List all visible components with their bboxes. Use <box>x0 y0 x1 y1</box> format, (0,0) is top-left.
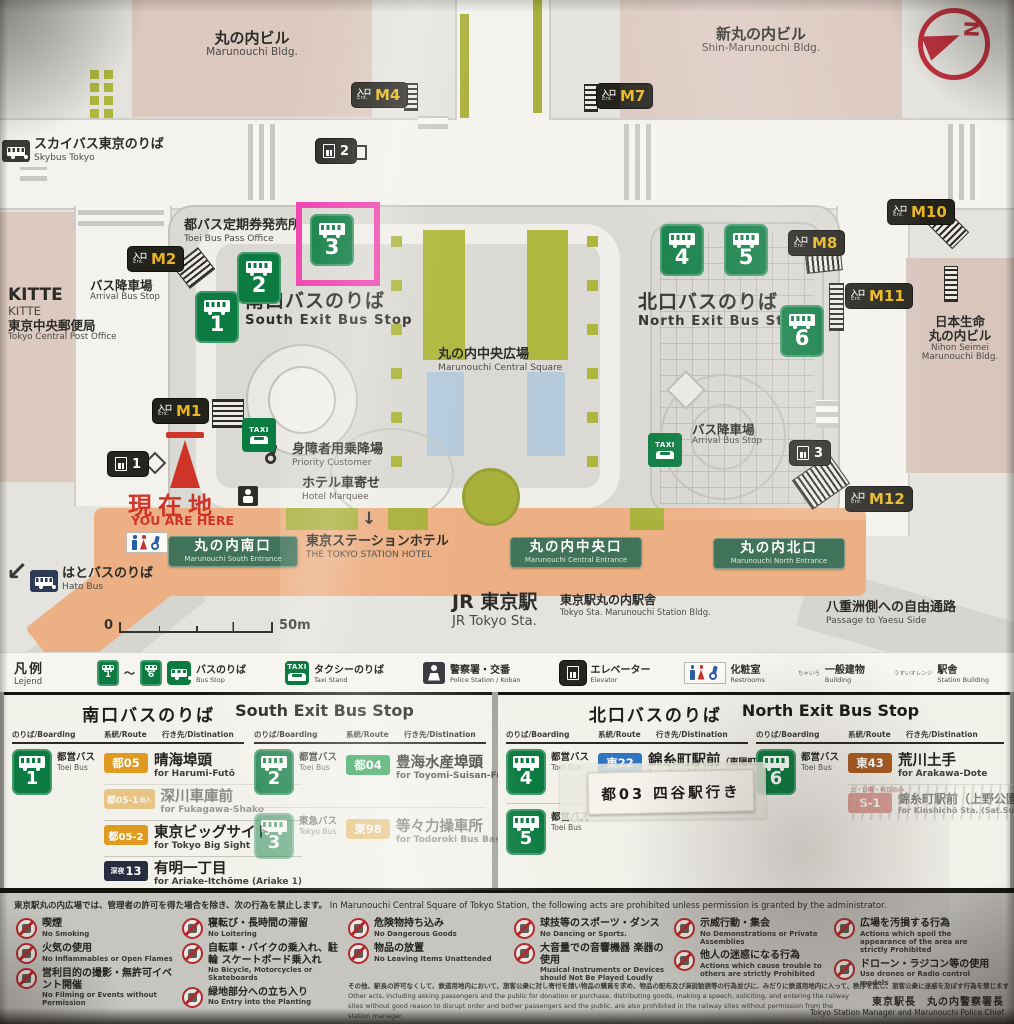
rule-no-dangerous-goods: 危険物持ち込みNo Dangerous Goods <box>348 918 506 939</box>
elevator-glyph <box>797 446 809 460</box>
nihon-seimei-building <box>906 258 1014 473</box>
south-table-title: 南口バスのりばSouth Exit Bus Stop <box>4 701 492 726</box>
bus-stop-1-mini-icon: 1 <box>97 660 119 686</box>
rule-no-defacing: 広場を汚損する行為Actions which spoil the appeara… <box>834 918 992 955</box>
no-sports-dance-icon <box>514 918 535 939</box>
no-loud-devices-icon <box>514 943 535 964</box>
entrance-m2-badge: 入口Ent.M2 <box>128 247 183 271</box>
shin-marunouchi-building <box>620 0 902 118</box>
legend-title: 凡例Lejend <box>14 658 44 687</box>
rule-no-open-flames: 火気の使用No Inflammables or Open Flames <box>16 943 174 964</box>
bus-stop-1-icon: 1 <box>12 749 52 795</box>
compass-needle <box>921 23 964 61</box>
stairs-icon <box>829 283 844 331</box>
stop-3-cell: 3 東急バスTokyu Bus <box>254 813 346 859</box>
route-to43: 東43 荒川土手for Arakawa-Dote <box>848 749 1014 784</box>
rule-no-smoking: 喫煙No Smoking <box>16 918 174 939</box>
legend-bus-stop: 1 〜 6 バスのりばBus Stop <box>97 660 246 686</box>
median-green-strip <box>460 14 469 118</box>
scale-bar: 050m <box>104 618 311 633</box>
south-exit-table: 南口バスのりばSouth Exit Bus Stop のりば/Boarding系… <box>4 692 492 888</box>
rule-no-demonstrations: 示威行動・集会No Demonstrations or Private Asse… <box>674 918 832 946</box>
stairs-icon <box>584 84 598 112</box>
tree-grid <box>90 70 99 79</box>
planting <box>388 508 428 530</box>
no-demonstrations-icon <box>674 918 695 939</box>
marunouchi-central-entrance-label: 丸の内中央口Marunouchi Central Entrance <box>510 537 642 568</box>
bus-stop-1-icon: 1 <box>195 291 239 343</box>
route-s1-discontinued: 土・日曜・祝日のみ S-1 錦糸町駅前（上野公園経由）for Kinshichō… <box>848 784 1014 820</box>
central-square-lawn <box>423 230 465 360</box>
table-header: のりば/Boarding系統/Route行き先/Distination <box>254 729 486 744</box>
bus-icon <box>733 233 759 245</box>
marunouchi-bldg-label: 丸の内ビルMarunouchi Bldg. <box>132 30 372 59</box>
rule-no-trouble: 他人の迷惑になる行為Actions which cause trouble to… <box>674 950 832 978</box>
rules-column-4: 球技等のスポーツ・ダンスNo Dancing or Sports. 大音量での音… <box>514 918 672 983</box>
stop-2-cell: 2 都営バスToei Bus <box>254 749 346 795</box>
crosswalk <box>248 124 280 200</box>
entrance-m11-badge: 入口Ent.M11 <box>846 284 912 308</box>
stop-6-cell: 6 都営バスToei Bus <box>756 749 848 795</box>
bus-stop-5-icon: 5 <box>724 224 768 276</box>
bus-stop-5-icon: 5 <box>506 809 546 855</box>
no-smoking-icon <box>16 918 37 939</box>
bus-stop-6-mini-icon: 6 <box>140 660 162 686</box>
rules-column-3: 危険物持ち込みNo Dangerous Goods 物品の放置No Leavin… <box>348 918 506 964</box>
north-table-title: 北口バスのりばNorth Exit Bus Stop <box>498 701 1010 726</box>
legend-restrooms: 化粧室Restrooms <box>684 661 765 684</box>
legend-station-building: うすいオレンジ 駅舎Station Building <box>894 661 989 684</box>
bus-stop-2-icon: 2 <box>254 749 294 795</box>
route-to04: 都04 豊海水産埠頭for Toyomi-Suisan-Futō <box>346 749 513 786</box>
tree-row <box>587 236 598 247</box>
rule-no-entry-planting: 緑地部分への立ち入りNo Entry into the Planting <box>182 987 340 1008</box>
post-office-label: 東京中央郵便局Tokyo Central Post Office <box>8 319 117 343</box>
elevator-icon <box>560 661 586 685</box>
stairs-icon <box>944 266 958 302</box>
scale-line <box>119 622 273 633</box>
southwest-arrow: ↙ <box>6 558 28 588</box>
round-tree <box>462 468 520 526</box>
shin-marunouchi-bldg-label: 新丸の内ビルShin-Marunouchi Bldg. <box>620 26 902 55</box>
bus-icon <box>204 300 230 312</box>
rules-column-2: 寝転び・長時間の滞留No Loitering 自転車・バイクの乗入れ、駐輪 スケ… <box>182 918 340 1008</box>
road-horizontal <box>0 118 1014 210</box>
hato-bus-label: はとバスのりばHato Bus <box>62 567 153 592</box>
rule-no-unattended-items: 物品の放置No Leaving Items Unattended <box>348 943 506 964</box>
hotel-marquee-label: ホテル車寄せHotel Marquee <box>302 477 380 502</box>
crosswalk <box>948 124 980 200</box>
rule-no-filming: 営利目的の撮影・無許可イベント開催No Filming or Events wi… <box>16 968 174 1008</box>
restrooms-icon <box>126 532 168 553</box>
legend-building: ちゃいろ 一般建物Building <box>798 661 865 684</box>
no-drones-icon <box>834 959 855 980</box>
bus-icon <box>246 261 272 273</box>
bus-icon <box>789 314 815 326</box>
entrance-m7-badge: 入口Ent.M7 <box>597 84 652 108</box>
highlight-box-stop-3 <box>296 202 380 286</box>
no-filming-icon <box>16 968 37 989</box>
jr-tokyo-station-label: JR 東京駅JR Tokyo Sta. <box>452 592 537 629</box>
tree-row <box>391 236 402 247</box>
no-loitering-icon <box>182 918 203 939</box>
bus-stop-4-icon: 4 <box>660 224 704 276</box>
rule-no-loitering: 寝転び・長時間の滞留No Loitering <box>182 918 340 939</box>
south-group-stop2-3: のりば/Boarding系統/Route行き先/Distination 2 都営… <box>254 729 486 859</box>
taxi-stand-icon: TAXI <box>242 418 276 452</box>
elevator-glyph <box>115 457 127 471</box>
yaesu-passage-label: 八重洲側への自由通路Passage to Yaesu Side <box>826 601 956 626</box>
bus-route-tables: 南口バスのりばSouth Exit Bus Stop のりば/Boarding系… <box>0 692 1014 888</box>
table-header: のりば/Boarding系統/Route行き先/Distination <box>506 729 748 744</box>
pass-office-label: 都バス定期券発売所Toei Bus Pass Office <box>184 219 301 244</box>
route-shinya13: 深夜13 有明一丁目for Ariake-Itchōme (Ariake 1) <box>104 856 302 892</box>
route-badge: 東43 <box>848 753 892 773</box>
no-defacing-icon <box>834 918 855 939</box>
rules-signature: 東京駅長 丸の内警察署長Tokyo Station Manager and Ma… <box>810 993 1004 1017</box>
planting <box>630 508 664 530</box>
route-badge: 都05 <box>104 753 148 773</box>
central-square-label: 丸の内中央広場Marunouchi Central Square <box>438 348 562 373</box>
you-are-here-marker <box>170 440 200 488</box>
police-icon <box>423 662 445 684</box>
man-icon <box>132 535 137 550</box>
rule-no-sports-dance: 球技等のスポーツ・ダンスNo Dancing or Sports. <box>514 918 672 939</box>
structure-square <box>352 145 367 160</box>
bus-stop-2-icon: 2 <box>237 252 281 304</box>
elevator-2-icon: 2 <box>316 139 356 163</box>
tilde: 〜 <box>124 665 135 681</box>
entrance-m10-badge: 入口Ent.M10 <box>888 200 954 224</box>
rules-column-1: 喫煙No Smoking 火気の使用No Inflammables or Ope… <box>16 918 174 1008</box>
bellhop-icon <box>238 486 258 506</box>
no-entry-planting-icon <box>182 987 203 1008</box>
nihon-seimei-label: 日本生命丸の内ビルNihon SeimeiMarunouchi Bldg. <box>908 315 1012 363</box>
compass-north-icon: N <box>918 8 990 80</box>
crosswalk <box>624 124 656 200</box>
elevator-1-icon: 1 <box>108 452 148 476</box>
station-map-sign-photo: N 丸の内ビルMarunouchi Bldg. 新丸の内ビルShin-Marun… <box>0 0 1014 1024</box>
rules-header: 東京駅丸の内広場では、管理者の許可を得た場合を除き、次の行為を禁止します。 In… <box>14 899 886 911</box>
woman-icon <box>140 535 147 550</box>
marunouchi-south-entrance-label: 丸の内南口Marunouchi South Entrance <box>168 536 298 567</box>
bus-stop-4-icon: 4 <box>506 749 546 795</box>
route-badge: 深夜13 <box>104 861 148 881</box>
no-open-flames-icon <box>16 943 37 964</box>
table-header: のりば/Boarding系統/Route行き先/Distination <box>756 729 1004 744</box>
route-badge: 都04 <box>346 755 390 775</box>
station-bldg-label: 東京駅丸の内駅舎Tokyo Sta. Marunouchi Station Bl… <box>560 594 711 617</box>
marunouchi-north-entrance-label: 丸の内北口Marunouchi North Entrance <box>713 538 845 569</box>
rules-column-6: 広場を汚損する行為Actions which spoil the appeara… <box>834 918 992 987</box>
no-dangerous-goods-icon <box>348 918 369 939</box>
you-are-here-marker-top <box>166 432 204 438</box>
table-header: のりば/Boarding系統/Route行き先/Distination <box>12 729 244 744</box>
planting <box>286 508 358 530</box>
bus-icon <box>7 147 25 156</box>
entrance-m1-badge: 入口Ent.M1 <box>153 399 208 423</box>
legend-taxi: TAXI タクシーのりばTaxi Stand <box>285 661 384 685</box>
kitte-building <box>0 212 74 482</box>
rule-no-loud-devices: 大音量での音響機器 楽器の使用Musical Instruments or De… <box>514 943 672 983</box>
central-square-water <box>527 372 565 456</box>
arrival-bus-stop-label-south: バス降車場Arrival Bus Stop <box>90 279 160 303</box>
route-note: 土・日曜・祝日のみ <box>850 785 904 794</box>
route-badge: 都05-1出入 <box>104 789 155 809</box>
hato-bus-icon <box>30 570 58 592</box>
rules-column-5: 示威行動・集会No Demonstrations or Private Asse… <box>674 918 832 979</box>
route-badge: S-1 <box>848 793 892 813</box>
skybus-label: スカイバス東京のりばSkybus Tokyo <box>34 138 164 163</box>
central-square-lawn <box>527 230 568 360</box>
stairs-icon <box>212 399 244 428</box>
crosswalk <box>816 400 838 428</box>
stop-1-cell: 1 都営バスToei Bus <box>12 749 104 795</box>
elevator-glyph <box>323 144 335 158</box>
legend-elevator: エレベーターElevator <box>560 661 651 685</box>
bus-stop-icon <box>167 661 191 685</box>
no-bicycles-icon <box>182 943 203 964</box>
car-icon <box>250 436 268 444</box>
skybus-icon <box>2 140 30 162</box>
compass-letter: N <box>961 20 982 37</box>
route-change-sticker: 都03 四谷駅行き <box>588 769 755 814</box>
bus-stop-3-icon: 3 <box>254 813 294 859</box>
entrance-m8-badge: 入口Ent.M8 <box>789 231 844 255</box>
you-are-here-en: YOU ARE HERE <box>131 513 234 528</box>
south-group-stop1: のりば/Boarding系統/Route行き先/Distination 1 都営… <box>12 729 244 892</box>
kitte-label: KITTEKITTE <box>8 286 63 319</box>
restrooms-icon <box>684 662 726 684</box>
priority-customer-label: 身障者用乗降場Priority Customer <box>292 443 383 468</box>
no-trouble-icon <box>674 950 695 971</box>
crosswalk <box>20 167 47 181</box>
north-exit-table: 北口バスのりばNorth Exit Bus Stop のりば/Boarding系… <box>498 692 1010 888</box>
wheelchair-icon <box>150 535 162 550</box>
elevator-3-icon: 3 <box>790 441 830 465</box>
route-badge: 都05-2 <box>104 825 148 845</box>
rule-no-bicycles: 自転車・バイクの乗入れ、駐輪 スケートボード乗入れNo Bicycle, Mot… <box>182 943 340 983</box>
station-hotel-label: 東京ステーションホテルTHE TOKYO STATION HOTEL <box>306 535 449 560</box>
route-badge: 東98 <box>346 819 390 839</box>
taxi-stand-icon: TAXI <box>648 433 682 467</box>
bus-stop-6-icon: 6 <box>780 305 824 357</box>
route-to98: 東98 等々力操車所for Todoroki Bus Base <box>346 813 506 850</box>
median-green-strip <box>533 0 542 113</box>
bus-icon <box>669 233 695 245</box>
legend-strip: 凡例Lejend 1 〜 6 バスのりばBus Stop TAXI タクシーのり… <box>0 652 1014 692</box>
no-unattended-items-icon <box>348 943 369 964</box>
north-group-stop6: のりば/Boarding系統/Route行き先/Distination 6 都営… <box>756 729 1004 820</box>
taxi-stand-icon: TAXI <box>285 661 309 685</box>
legend-police: 警察署・交番Police Station / Koban <box>423 661 521 684</box>
crosswalk <box>418 116 448 129</box>
station-area-map: N 丸の内ビルMarunouchi Bldg. 新丸の内ビルShin-Marun… <box>0 0 1014 652</box>
prohibited-acts-panel: 東京駅丸の内広場では、管理者の許可を得た場合を除き、次の行為を禁止します。 In… <box>0 888 1014 1024</box>
arrival-bus-stop-label-north: バス降車場Arrival Bus Stop <box>692 423 762 447</box>
car-icon <box>656 451 674 459</box>
circular-ramp-inner <box>268 366 336 434</box>
down-arrow: ↓ <box>362 510 376 529</box>
entrance-m4-badge: 入口Ent.M4 <box>352 83 407 107</box>
entrance-m12-badge: 入口Ent.M12 <box>846 487 912 511</box>
crosswalk <box>78 208 164 226</box>
bus-icon <box>35 577 53 586</box>
stairs-icon <box>805 252 843 274</box>
